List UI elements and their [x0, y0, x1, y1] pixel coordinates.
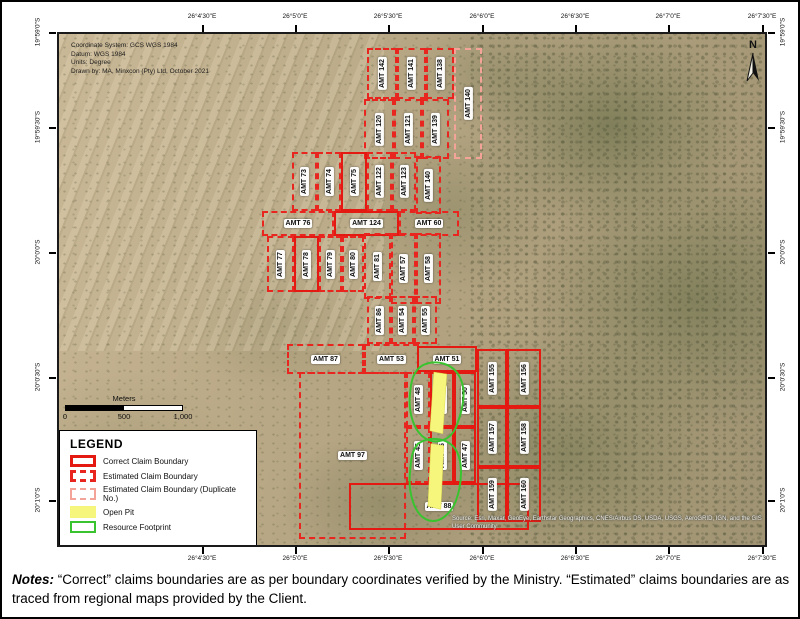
longitude-tick-label: 26°6'0"E — [470, 13, 495, 20]
legend-item-label: Estimated Claim Boundary (Duplicate No.) — [103, 485, 248, 503]
claim-amt-159: AMT 159 — [477, 467, 507, 522]
claim-amt-78: AMT 78 — [294, 236, 319, 292]
claim-label: AMT 139 — [431, 113, 440, 146]
claim-label: AMT 75 — [350, 167, 359, 196]
claim-label: AMT 51 — [433, 355, 462, 364]
legend-item-label: Resource Footprint — [103, 523, 171, 532]
claim-amt-155: AMT 155 — [477, 349, 507, 407]
latitude-tick-label: 20°0'0"S — [780, 240, 787, 265]
claim-label: AMT 78 — [302, 250, 311, 279]
north-arrow-icon — [742, 51, 764, 87]
tick-mark — [482, 25, 484, 32]
claim-amt-87: AMT 87 — [287, 344, 364, 374]
tick-mark — [668, 25, 670, 32]
latitude-tick-label: 19°59'0"S — [780, 18, 787, 47]
legend-item-label: Estimated Claim Boundary — [103, 472, 198, 481]
claim-label: AMT 141 — [407, 57, 416, 90]
legend-swatch-dup — [70, 488, 96, 500]
claim-amt-50: AMT 50 — [454, 372, 476, 427]
claim-label: AMT 77 — [276, 250, 285, 279]
map-info-line: Datum: WGS 1984 — [71, 51, 209, 60]
legend-panel: LEGEND Correct Claim BoundaryEstimated C… — [59, 430, 257, 547]
claim-amt-79: AMT 79 — [319, 236, 342, 292]
tick-mark — [202, 547, 204, 554]
latitude-tick-label: 19°59'30"S — [35, 111, 42, 143]
longitude-tick-label: 26°5'0"E — [283, 555, 308, 562]
notes-label: Notes: — [12, 572, 54, 587]
map-canvas[interactable]: AMT 142AMT 141AMT 138AMT 140AMT 120AMT 1… — [57, 32, 767, 547]
claim-amt-156: AMT 156 — [507, 349, 541, 407]
scale-bar-title: Meters — [65, 394, 183, 403]
claim-amt-74: AMT 74 — [317, 152, 341, 211]
claim-label: AMT 120 — [375, 113, 384, 146]
longitude-tick-label: 26°5'30"E — [374, 555, 403, 562]
claim-amt-120: AMT 120 — [364, 99, 394, 159]
claim-label: AMT 60 — [415, 219, 444, 228]
legend-swatch-solid — [70, 455, 96, 467]
claim-label: AMT 57 — [399, 254, 408, 283]
tick-mark — [295, 25, 297, 32]
scale-bar: Meters 05001,000 — [65, 394, 183, 421]
tick-mark — [762, 25, 764, 32]
tick-mark — [668, 547, 670, 554]
tick-mark — [768, 127, 775, 129]
claim-label: AMT 54 — [398, 306, 407, 335]
north-arrow: N — [742, 40, 764, 90]
longitude-tick-label: 26°4'30"E — [188, 555, 217, 562]
claim-label: AMT 79 — [326, 250, 335, 279]
tick-mark — [575, 547, 577, 554]
legend-swatch-foot — [70, 521, 96, 533]
latitude-tick-label: 19°59'30"S — [780, 111, 787, 143]
claim-label: AMT 87 — [311, 355, 340, 364]
claim-label: AMT 74 — [325, 167, 334, 196]
scale-number: 0 — [63, 412, 67, 421]
legend-item: Resource Footprint — [70, 521, 248, 533]
claim-label: AMT 49 — [438, 385, 447, 414]
claim-amt-141: AMT 141 — [397, 48, 426, 99]
claim-amt-76: AMT 76 — [262, 211, 334, 236]
claim-label: AMT 81 — [373, 252, 382, 281]
claim-label: AMT 97 — [338, 451, 367, 460]
claim-amt-140: AMT 140 — [416, 156, 441, 214]
tick-mark — [202, 25, 204, 32]
map-info-line: Units: Degree — [71, 59, 209, 68]
tick-mark — [49, 32, 56, 34]
legend-item: Open Pit — [70, 506, 248, 518]
claim-amt-55: AMT 55 — [414, 296, 437, 344]
claim-label: AMT 122 — [375, 165, 384, 198]
longitude-tick-label: 26°7'0"E — [656, 13, 681, 20]
tick-mark — [768, 377, 775, 379]
tick-mark — [762, 547, 764, 554]
tick-mark — [49, 500, 56, 502]
legend-item: Correct Claim Boundary — [70, 455, 248, 467]
longitude-tick-label: 26°7'30"E — [748, 13, 777, 20]
claim-amt-140: AMT 140 — [454, 48, 482, 159]
claim-amt-142: AMT 142 — [367, 48, 397, 99]
claim-label: AMT 140 — [424, 169, 433, 202]
tick-mark — [49, 252, 56, 254]
claim-label: AMT 48 — [414, 385, 423, 414]
claim-label: AMT 76 — [284, 219, 313, 228]
legend-swatch-dashed — [70, 470, 96, 482]
tick-mark — [49, 377, 56, 379]
claim-label: AMT 45 — [414, 441, 423, 470]
longitude-tick-label: 26°7'0"E — [656, 555, 681, 562]
legend-item-label: Correct Claim Boundary — [103, 457, 188, 466]
scale-number: 500 — [118, 412, 131, 421]
claim-label: AMT 159 — [488, 478, 497, 511]
claim-label: AMT 138 — [436, 57, 445, 90]
claim-amt-157: AMT 157 — [477, 407, 507, 467]
claim-amt-45: AMT 45 — [406, 427, 430, 483]
claim-amt-75: AMT 75 — [341, 152, 367, 211]
claim-label: AMT 73 — [300, 167, 309, 196]
map-info-line: Drawn by: MA, Minxcon (Pty) Ltd, October… — [71, 68, 209, 77]
claim-label: AMT 58 — [424, 254, 433, 283]
claim-amt-122: AMT 122 — [367, 152, 392, 211]
claim-label: AMT 158 — [520, 421, 529, 454]
longitude-tick-label: 26°7'30"E — [748, 555, 777, 562]
claim-amt-46: AMT 46 — [430, 427, 454, 483]
claim-label: AMT 124 — [350, 219, 383, 228]
claim-amt-139: AMT 139 — [422, 99, 449, 159]
claim-amt-138: AMT 138 — [426, 48, 454, 99]
tick-mark — [295, 547, 297, 554]
claim-label: AMT 140 — [464, 87, 473, 120]
tick-mark — [388, 25, 390, 32]
longitude-tick-label: 26°5'0"E — [283, 13, 308, 20]
claim-label: AMT 55 — [421, 306, 430, 335]
legend-item: Estimated Claim Boundary — [70, 470, 248, 482]
claim-amt-51: AMT 51 — [417, 346, 477, 372]
latitude-tick-label: 20°1'0"S — [780, 488, 787, 513]
claim-amt-81: AMT 81 — [364, 233, 391, 299]
claim-label: AMT 142 — [378, 57, 387, 90]
claim-amt-80: AMT 80 — [342, 236, 364, 292]
tick-mark — [49, 127, 56, 129]
legend-items: Correct Claim BoundaryEstimated Claim Bo… — [70, 455, 248, 533]
legend-item: Estimated Claim Boundary (Duplicate No.) — [70, 485, 248, 503]
tick-mark — [768, 252, 775, 254]
claim-label: AMT 123 — [400, 165, 409, 198]
latitude-tick-label: 20°0'30"S — [780, 363, 787, 392]
claim-label: AMT 86 — [375, 306, 384, 335]
claim-label: AMT 46 — [438, 441, 447, 470]
claim-amt-49: AMT 49 — [430, 372, 454, 427]
claim-label: AMT 53 — [377, 355, 406, 364]
claim-label: AMT 47 — [461, 441, 470, 470]
claim-amt-53: AMT 53 — [364, 344, 419, 374]
claim-label: AMT 155 — [488, 362, 497, 395]
claim-amt-48: AMT 48 — [406, 372, 430, 427]
claim-amt-58: AMT 58 — [416, 233, 441, 304]
coordinate-system-info: Coordinate System: GCS WGS 1984Datum: WG… — [71, 42, 209, 76]
claim-amt-86: AMT 86 — [367, 296, 391, 344]
notes-block: Notes: “Correct” claims boundaries are a… — [12, 570, 790, 608]
scale-number: 1,000 — [174, 412, 193, 421]
claim-label: AMT 156 — [520, 362, 529, 395]
claim-amt-121: AMT 121 — [394, 99, 422, 159]
latitude-tick-label: 20°0'30"S — [35, 363, 42, 392]
claim-label: AMT 50 — [461, 385, 470, 414]
tick-mark — [575, 25, 577, 32]
imagery-attribution: Source: Esri, Maxar, GeoEye, Earthstar G… — [452, 516, 764, 531]
tick-mark — [768, 32, 775, 34]
longitude-tick-label: 26°6'0"E — [470, 555, 495, 562]
tick-mark — [482, 547, 484, 554]
notes-text: “Correct” claims boundaries are as per b… — [12, 572, 789, 606]
map-info-line: Coordinate System: GCS WGS 1984 — [71, 42, 209, 51]
claim-label: AMT 157 — [488, 421, 497, 454]
longitude-tick-label: 26°5'30"E — [374, 13, 403, 20]
longitude-tick-label: 26°6'30"E — [561, 555, 590, 562]
longitude-tick-label: 26°6'30"E — [561, 13, 590, 20]
claim-amt-57: AMT 57 — [391, 233, 416, 304]
tick-mark — [388, 547, 390, 554]
north-label: N — [742, 40, 764, 51]
latitude-tick-label: 20°1'0"S — [35, 488, 42, 513]
scale-bar-graphic — [65, 405, 183, 411]
latitude-tick-label: 20°0'0"S — [35, 240, 42, 265]
claim-amt-77: AMT 77 — [267, 236, 294, 292]
claim-amt-158: AMT 158 — [507, 407, 541, 467]
tick-mark — [768, 500, 775, 502]
latitude-tick-label: 19°59'0"S — [35, 18, 42, 47]
claim-label: AMT 121 — [404, 113, 413, 146]
claim-amt-54: AMT 54 — [391, 296, 414, 344]
legend-swatch-pit — [70, 506, 96, 518]
claim-amt-160: AMT 160 — [507, 467, 541, 522]
claim-amt-123: AMT 123 — [392, 152, 416, 211]
claim-amt-73: AMT 73 — [292, 152, 317, 211]
claim-label: AMT 80 — [349, 250, 358, 279]
claim-label: AMT 88 — [425, 502, 454, 511]
map-sheet: AMT 142AMT 141AMT 138AMT 140AMT 120AMT 1… — [0, 0, 800, 619]
claim-amt-47: AMT 47 — [454, 427, 476, 483]
legend-item-label: Open Pit — [103, 508, 134, 517]
scale-bar-numbers: 05001,000 — [65, 412, 183, 421]
claim-label: AMT 160 — [520, 478, 529, 511]
longitude-tick-label: 26°4'30"E — [188, 13, 217, 20]
legend-title: LEGEND — [70, 437, 248, 451]
